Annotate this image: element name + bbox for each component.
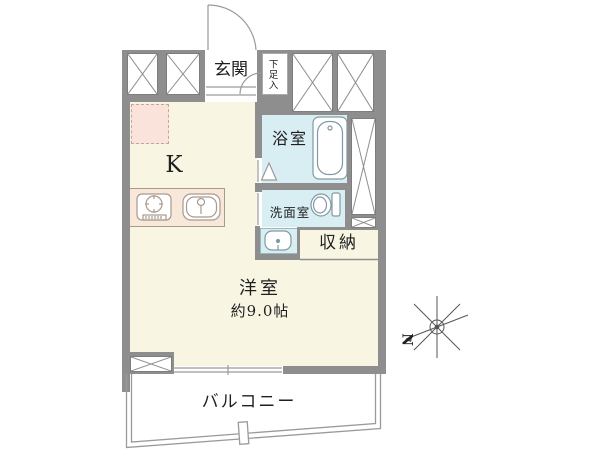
washroom-label: 洗面室 xyxy=(262,206,318,220)
main-room-size-label: 約9.0帖 xyxy=(200,303,320,320)
refrigerator-space xyxy=(131,104,169,144)
bathroom-label: 浴室 xyxy=(262,130,318,148)
wall-entrance-divider xyxy=(257,50,262,102)
kitchen-counter xyxy=(128,188,225,227)
shoe-cabinet-label: 下足入 xyxy=(266,55,276,95)
wall-room-divider-mid xyxy=(255,183,262,192)
wall-left xyxy=(122,50,130,392)
north-label: N xyxy=(398,331,413,349)
wall-bath-washroom-divider xyxy=(262,183,347,190)
pillar-marker-window-side xyxy=(130,356,172,372)
pipe-space-marker xyxy=(351,118,376,215)
duct-marker-small xyxy=(351,217,376,228)
balcony-label: バルコニー xyxy=(178,393,320,412)
compass-rose xyxy=(405,296,468,358)
pillar-marker-top-left-1 xyxy=(127,53,158,95)
balcony-window-line xyxy=(173,365,282,375)
main-room-label: 洋室 xyxy=(200,279,320,299)
pillar-marker-top-right-2 xyxy=(337,53,374,112)
floor-plan: 玄関 下足入 浴室 洗面室 収納 K 洋室 約9.0帖 バルコニー N xyxy=(0,0,600,450)
wall-room-divider-upper xyxy=(255,102,262,158)
entrance-label: 玄関 xyxy=(205,61,257,80)
storage-label: 収納 xyxy=(302,234,376,253)
pillar-marker-top-right-1 xyxy=(292,53,333,112)
wall-bottom-right xyxy=(283,366,386,374)
kitchen-label: K xyxy=(158,153,190,178)
wall-right xyxy=(378,50,386,374)
pillar-marker-top-left-2 xyxy=(166,53,200,95)
washbasin-area xyxy=(260,228,298,254)
wall-under-basin xyxy=(255,254,300,260)
room-bathroom xyxy=(262,115,347,183)
